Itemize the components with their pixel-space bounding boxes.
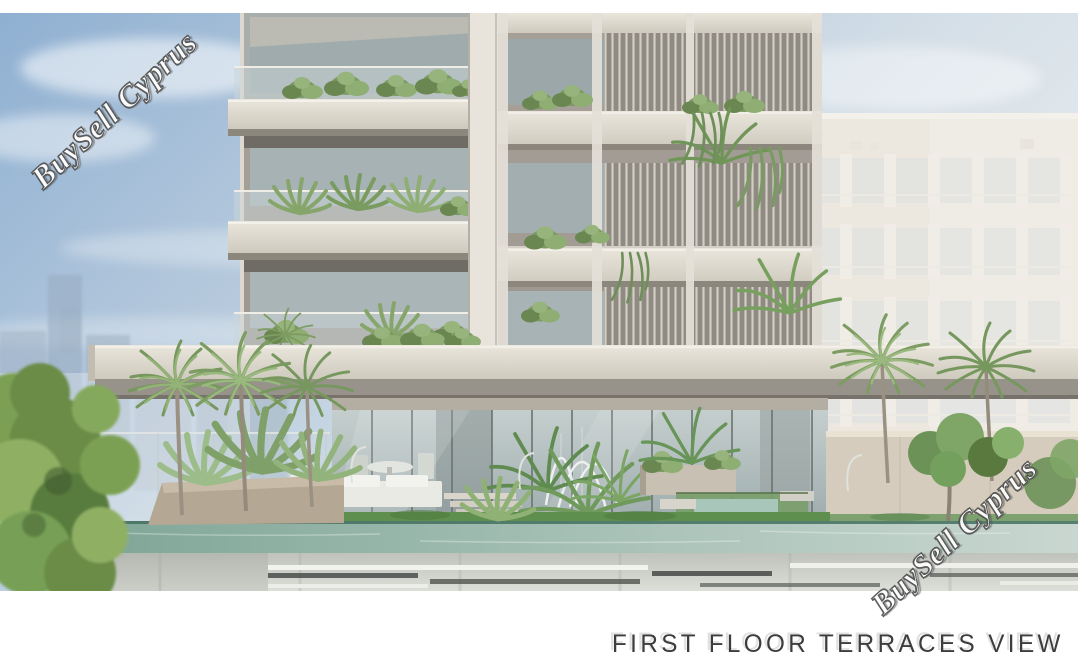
image-caption: FIRST FLOOR TERRACES VIEW [612, 630, 1064, 659]
tower-left-balconies [228, 13, 496, 345]
page: BuySell Cyprus BuySell Cyprus FIRST FLOO… [0, 0, 1078, 664]
tower-central-column [468, 13, 498, 345]
neighbor-building [815, 113, 1078, 465]
tower-right-louvres [498, 13, 840, 345]
architectural-render [0, 13, 1078, 591]
